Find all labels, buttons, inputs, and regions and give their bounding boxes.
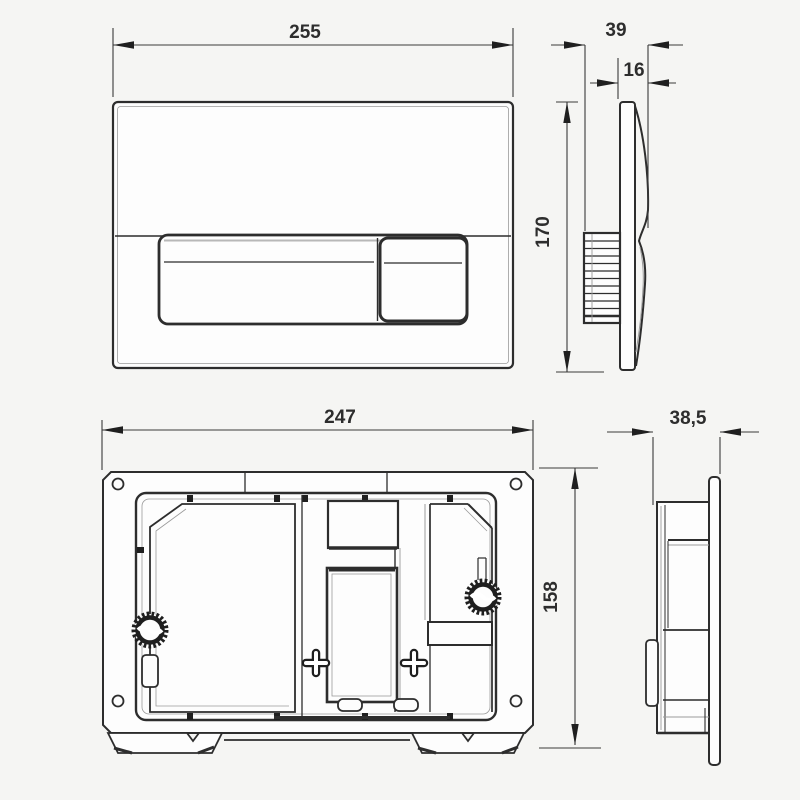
flush-plate-side-view [584,102,648,370]
screw-hole-top-left [113,479,124,490]
dimension-158: 158 [539,468,601,748]
mounting-clip-block [584,233,620,323]
plate-back-wall [620,102,635,370]
drawing-svg: 255 39 16 170 [0,0,800,800]
adjuster-knob-left [134,614,166,646]
flush-button-area [159,235,467,324]
technical-drawing-canvas: 255 39 16 170 [0,0,800,800]
right-compartment-band [428,622,492,645]
plate-front-curve [635,106,648,366]
small-flush-button [380,238,467,321]
dimension-label-plate-depth: 16 [623,60,644,81]
flush-plate-front-view [113,102,513,368]
left-slot [142,655,158,687]
dimension-255: 255 [113,22,513,97]
adjuster-knob-right [467,581,499,613]
frame-feet [108,733,524,753]
dimension-label-front-height: 170 [533,216,554,248]
dimension-16: 16 [590,58,676,99]
frame-side-clip [646,640,658,706]
center-tall-box [327,568,397,702]
dimension-38-5: 38,5 [607,408,759,505]
dimension-39: 39 [551,20,683,231]
mounting-frame-side-view [646,477,720,765]
dimension-label-frame-height: 158 [541,581,562,613]
screw-hole-top-right [511,479,522,490]
screw-hole-bottom-left [113,696,124,707]
dimension-247: 247 [102,407,533,470]
center-top-window [328,501,398,548]
dimension-label-frame-width: 247 [324,407,356,428]
bottom-tab-left [338,699,362,711]
dimension-label-frame-depth: 38,5 [670,408,707,429]
frame-inner-rim [136,493,496,720]
frame-back-wall [709,477,720,765]
screw-hole-bottom-right [511,696,522,707]
dimension-label-front-width: 255 [289,22,321,43]
bottom-tab-right [394,699,418,711]
mounting-frame-front-view [103,472,533,753]
dimension-label-side-depth: 39 [605,20,626,41]
